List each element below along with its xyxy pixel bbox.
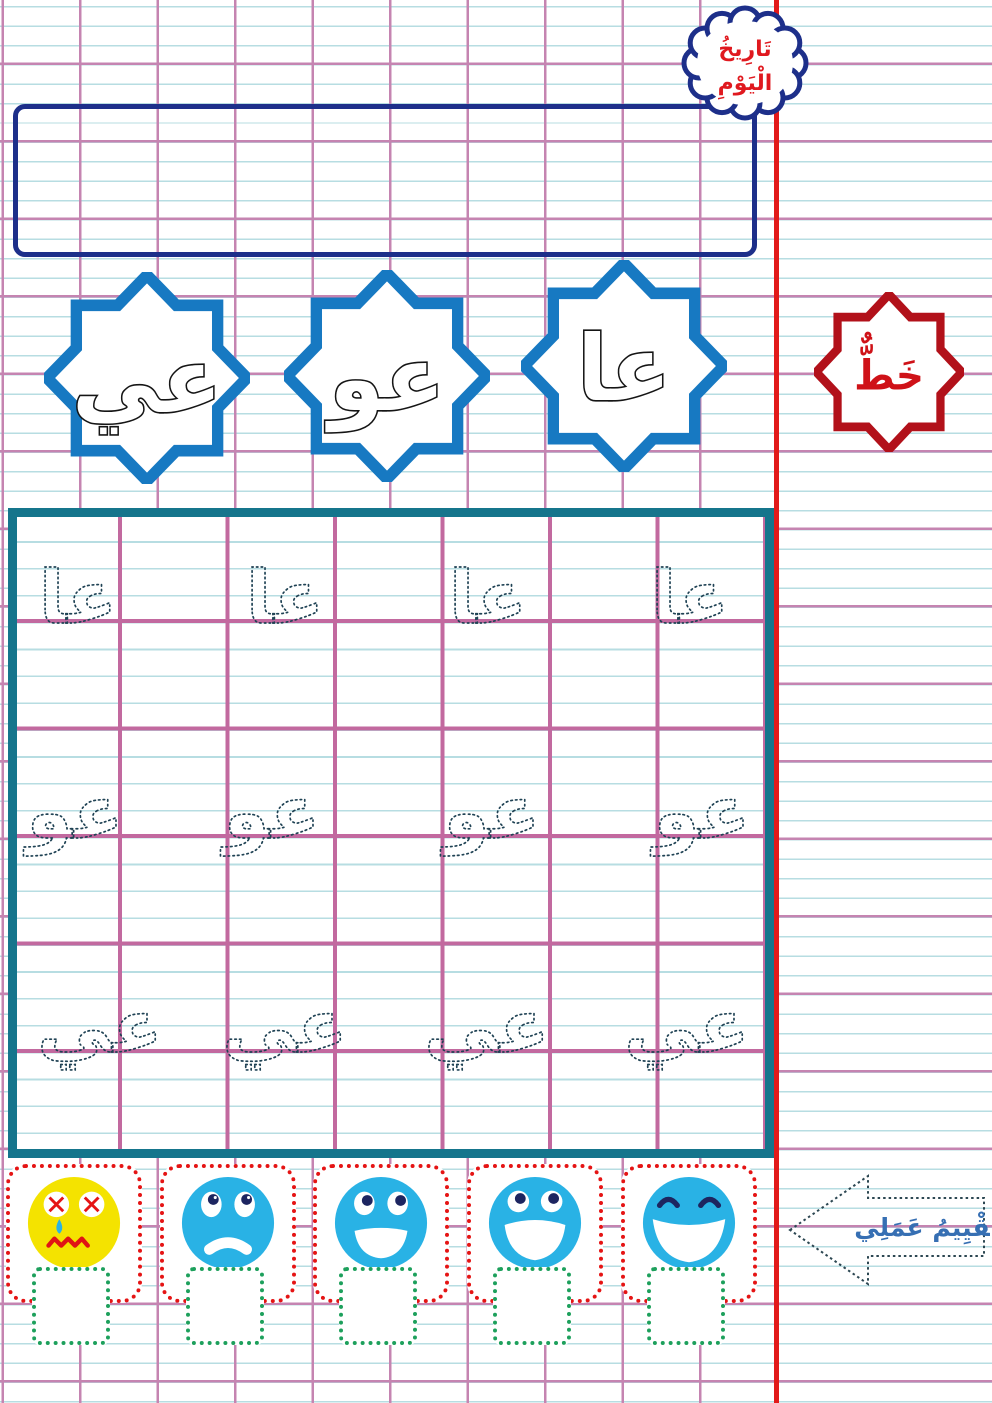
evaluation-option-happy[interactable] [467,1164,603,1348]
laugh-face-icon [640,1174,738,1272]
margin-line [774,0,779,1403]
star-letters-text: عا [577,317,671,422]
evaluation-checkbox[interactable] [339,1267,417,1345]
subject-star: خَطٌّ [814,292,964,452]
trace-letter-aa: عا [408,528,568,648]
evaluation-option-sad[interactable] [160,1164,296,1348]
grin-face-icon [486,1174,584,1272]
svg-text:عي: عي [222,984,347,1070]
svg-text:عو: عو [650,770,751,857]
star-letters-text: عي [72,329,222,434]
trace-letter-aa: عا [205,528,365,648]
evaluation-checkbox[interactable] [186,1267,264,1345]
svg-text:عو: عو [220,770,321,857]
svg-text:عا: عا [449,555,527,641]
svg-text:عا: عا [651,555,729,641]
svg-text:عا: عا [246,555,324,641]
trace-letter-aw: عو [622,768,782,898]
evaluation-arrow-text: تَقْيِيمُ عَمَلِي [854,1212,990,1245]
worksheet-page: تَارِيخُ الْيَوْمِ عي عو عا خَطٌّ عا عا … [0,0,992,1403]
svg-text:عي: عي [624,984,749,1070]
evaluation-checkbox[interactable] [32,1267,110,1345]
evaluation-arrow: تَقْيِيمُ عَمَلِي [786,1168,990,1292]
dead-face-icon [25,1174,123,1272]
evaluation-checkbox[interactable] [647,1267,725,1345]
svg-text:عا: عا [39,555,117,641]
letter-star-ain-ya: عي [44,272,250,484]
star-letters-text: عو [325,327,445,432]
svg-text:عي: عي [424,984,549,1070]
trace-letter-aw: عو [412,768,572,898]
trace-letter-aa: عا [610,528,770,648]
evaluation-option-okay[interactable] [313,1164,449,1348]
date-cloud-text-line1: تَارِيخُ [718,35,771,66]
evaluation-checkbox[interactable] [493,1267,571,1345]
date-input-box[interactable] [13,104,757,257]
trace-letter-aw: عو [0,768,155,898]
svg-text:عو: عو [440,770,541,857]
trace-letter-ay: عي [205,990,365,1120]
date-cloud-text-line2: الْيَوْمِ [718,66,773,100]
smile-face-icon [332,1174,430,1272]
trace-letter-aa: عا [0,528,158,648]
evaluation-option-very-happy[interactable] [621,1164,757,1348]
trace-letter-ay: عي [20,990,180,1120]
trace-letter-ay: عي [407,990,567,1120]
svg-text:عي: عي [37,984,162,1070]
svg-text:عو: عو [23,770,124,857]
evaluation-option-very-sad[interactable] [6,1164,142,1348]
letter-star-ain-alif: عا [521,260,727,472]
date-cloud-icon: تَارِيخُ الْيَوْمِ [678,4,812,124]
sad-face-icon [179,1174,277,1272]
letter-star-ain-waw: عو [284,270,490,482]
trace-letter-ay: عي [607,990,767,1120]
trace-letter-aw: عو [192,768,352,898]
